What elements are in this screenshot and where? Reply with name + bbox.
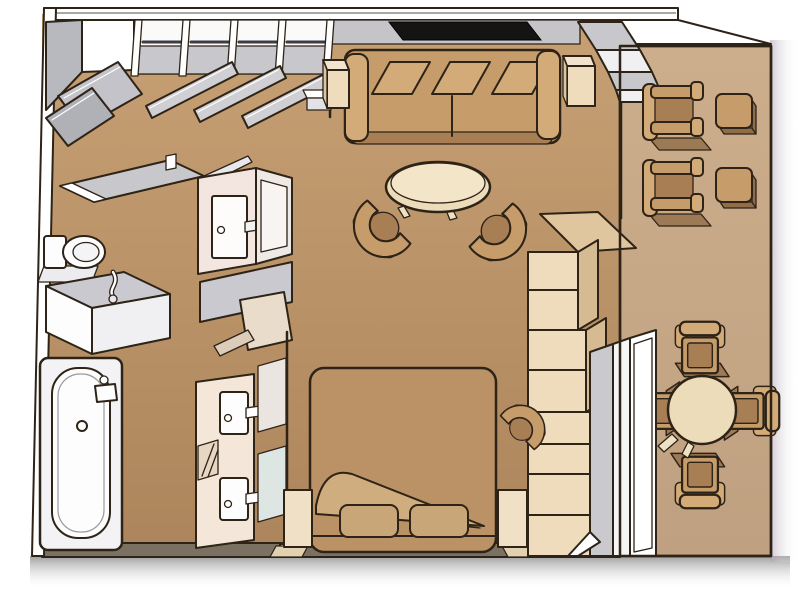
washbasin	[46, 272, 170, 354]
sink-1	[220, 392, 248, 434]
drain	[77, 421, 87, 431]
tub-faucet	[95, 384, 117, 402]
right-drop-shadow	[770, 40, 798, 562]
shower-post	[166, 154, 176, 170]
sofa-arm-right	[537, 51, 560, 139]
side-table-left	[323, 60, 349, 108]
toilet	[38, 236, 105, 282]
balcony-table-1	[716, 94, 756, 134]
vanity-mirror-1	[258, 358, 286, 432]
balcony-table-2	[716, 168, 756, 208]
pillow-right	[410, 505, 468, 537]
wc-mirror	[261, 180, 287, 252]
bathtub	[40, 358, 122, 550]
tv	[389, 22, 541, 40]
side-table-right	[563, 56, 595, 106]
wc-door	[212, 196, 247, 258]
bed	[310, 368, 496, 552]
sink-2	[220, 478, 248, 520]
wc-door-knob	[218, 227, 225, 234]
vanity-mirror-2	[258, 446, 286, 522]
pillow-left	[340, 505, 398, 537]
sofa	[345, 50, 560, 144]
floor-plan	[0, 0, 800, 589]
bottom-drop-shadow	[30, 556, 790, 589]
floor-plan-canvas	[0, 0, 800, 589]
